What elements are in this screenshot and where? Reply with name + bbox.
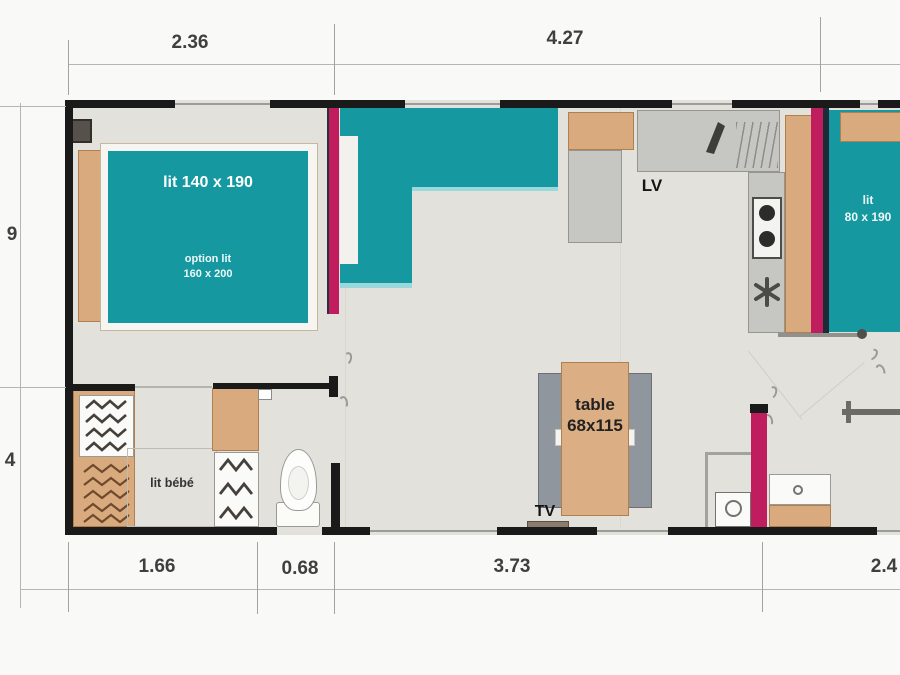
dimension-label-top: 4.27 <box>505 28 625 50</box>
dimension-tick <box>68 542 69 612</box>
track-end-knob <box>857 329 867 339</box>
dimension-label-bottom: 3.73 <box>452 556 572 578</box>
shower-enclosure-line <box>705 452 752 455</box>
exterior-wall <box>65 100 73 535</box>
dimension-label-bottom: 1.66 <box>97 556 217 578</box>
stove-burner <box>759 205 775 221</box>
exterior-wall <box>65 527 277 535</box>
dimension-line-bottom <box>20 589 900 590</box>
fridge <box>568 150 622 243</box>
sofa-notch <box>340 136 358 264</box>
shelf-right-wood <box>212 388 259 451</box>
sofa-edge <box>412 187 558 191</box>
tv-label: TV <box>522 503 568 521</box>
window <box>672 103 732 105</box>
towel-shelf-left <box>79 395 134 457</box>
window <box>597 530 668 532</box>
exterior-wall <box>878 100 900 108</box>
kitchen-tall-cabinet <box>785 115 812 333</box>
bathroom-sliding-door <box>751 412 767 527</box>
hangers-icon <box>79 461 134 525</box>
master-bed-option-line2: 160 x 200 <box>108 267 308 282</box>
window <box>877 530 900 532</box>
shower-enclosure-line <box>705 452 708 527</box>
extension-line <box>0 387 66 388</box>
master-bed-option-line1: option lit <box>108 252 308 267</box>
exterior-wall <box>732 100 860 108</box>
sink-basin-icon <box>793 485 803 495</box>
exterior-wall <box>500 100 672 108</box>
faucet-icon <box>704 118 734 158</box>
second-bed-headboard-shelf <box>840 112 900 142</box>
bed-side-bench <box>78 150 101 322</box>
exterior-wall <box>668 527 730 535</box>
table-label-line1: table <box>559 394 631 415</box>
dimension-label-bottom: 2.4 <box>849 556 900 578</box>
dimension-label-top: 2.36 <box>130 32 250 54</box>
wc-door-endcap <box>329 376 338 397</box>
wc-wall <box>331 463 340 529</box>
wc-sliding-door <box>213 383 333 389</box>
table-label-line2: 68x115 <box>559 415 631 436</box>
gas-burner-icon <box>750 274 784 310</box>
exterior-wall <box>270 100 405 108</box>
baby-bed-label: lit bébé <box>128 476 216 490</box>
wc-door-handle <box>258 389 272 400</box>
master-bed-label: lit 140 x 190 <box>108 174 308 192</box>
second-bed-label-line2: 80 x 190 <box>824 209 900 226</box>
vanity-base <box>769 505 831 527</box>
exterior-wall <box>730 527 877 535</box>
kitchen-partition-door <box>811 108 823 333</box>
dining-table <box>561 362 629 516</box>
dimension-label-left: 4 <box>0 450 20 472</box>
master-bed-option-label: option lit 160 x 200 <box>108 252 308 282</box>
second-bed-label-line1: lit <box>824 192 900 209</box>
sink-drainer-icon <box>736 122 778 168</box>
dimension-tick <box>257 542 258 614</box>
exterior-wall <box>497 527 597 535</box>
kitchen-wood-cabinet <box>568 112 634 150</box>
dimension-line-left <box>20 103 21 608</box>
table-label: table 68x115 <box>559 394 631 436</box>
toilet-bowl-inner <box>288 466 309 500</box>
dimension-tick <box>762 542 763 612</box>
towel-rows-icon <box>80 396 133 456</box>
floor-plan: lit 140 x 190 option lit 160 x 200 LV li… <box>0 0 900 675</box>
bathroom-door-cap <box>750 404 768 413</box>
dimension-tick <box>820 17 821 92</box>
dimension-label-left: 9 <box>0 224 24 246</box>
sliding-door-track <box>778 333 862 337</box>
partition-wall-edge <box>823 108 829 333</box>
stove-burner <box>759 231 775 247</box>
sofa-edge <box>340 283 412 288</box>
dishwasher-label: LV <box>628 176 676 196</box>
bedroom-sliding-door <box>327 108 339 314</box>
dimension-line-top <box>68 64 900 65</box>
dimension-tick <box>334 24 335 95</box>
door-hinge <box>846 401 851 423</box>
second-bed-label: lit 80 x 190 <box>824 192 900 226</box>
exterior-wall <box>322 527 370 535</box>
dimension-label-bottom: 0.68 <box>268 558 332 580</box>
extension-line <box>0 106 66 107</box>
window <box>860 103 878 105</box>
towel-shelf-right <box>214 452 259 527</box>
window <box>370 530 497 532</box>
dimension-tick <box>68 40 69 95</box>
window <box>405 103 500 105</box>
dimension-tick <box>334 542 335 614</box>
threshold-line <box>135 386 212 388</box>
exterior-wall <box>65 100 175 108</box>
washing-machine-door-icon <box>725 500 742 517</box>
towel-rows-icon <box>215 453 258 526</box>
interior-wall <box>65 384 135 391</box>
window <box>175 103 270 105</box>
